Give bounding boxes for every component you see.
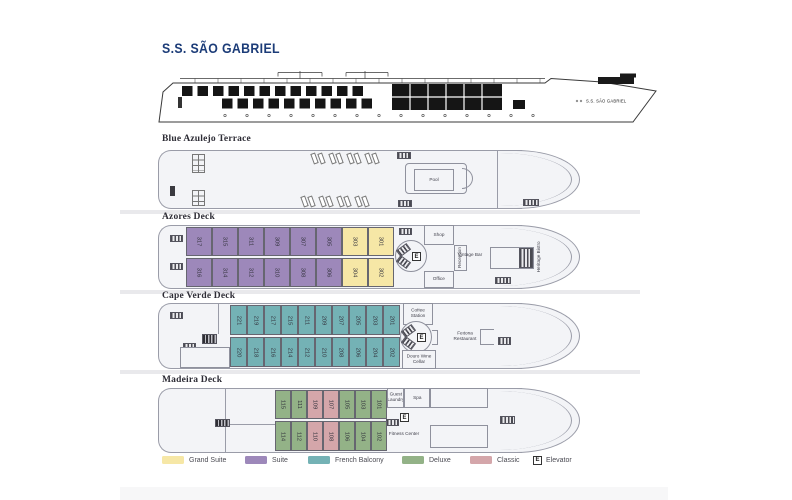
legend-item-grand: Grand Suite — [162, 455, 226, 465]
room-unlabeled — [430, 388, 488, 408]
deck-bow — [516, 388, 580, 453]
cabin-218: 218 — [247, 337, 264, 367]
cabin-209: 209 — [315, 305, 332, 335]
stairs-icon — [396, 243, 411, 257]
cabin-203: 203 — [366, 305, 383, 335]
legend-item-elevator: EElevator — [533, 455, 572, 465]
legend-swatch — [470, 456, 492, 464]
pool-area: Pool — [405, 163, 467, 194]
cabin-107: 107 — [323, 390, 339, 419]
cabin-111: 111 — [291, 390, 307, 419]
pool-label: Pool — [429, 178, 438, 183]
cabin-310: 310 — [264, 258, 290, 287]
room-shop: Shop — [424, 225, 454, 245]
cabin-314: 314 — [212, 258, 238, 287]
cabin-214: 214 — [281, 337, 298, 367]
cabin-210: 210 — [315, 337, 332, 367]
cabin-305: 305 — [316, 227, 342, 256]
legend-swatch — [162, 456, 184, 464]
deck-label-azores: Azores Deck — [162, 212, 215, 222]
cabin-207: 207 — [332, 305, 349, 335]
stairs-icon — [397, 152, 411, 159]
room-office: Office — [424, 271, 454, 288]
cabin-220: 220 — [230, 337, 247, 367]
elevator-icon: E — [417, 333, 426, 342]
legend-swatch — [308, 456, 330, 464]
elevator-icon: E — [533, 456, 542, 465]
next-section-edge — [120, 487, 668, 500]
cabin-308: 308 — [290, 258, 316, 287]
cabin-315: 315 — [212, 227, 238, 256]
cabin-110: 110 — [307, 421, 323, 451]
bar-shelf — [519, 248, 533, 268]
ship-funnel — [598, 77, 634, 84]
deck-plan-page: S.S. SÃO GABRIEL S.S. SÃO GABRIEL Blue A… — [0, 0, 792, 500]
cabin-102: 102 — [371, 421, 387, 451]
elevator-stairs: E — [395, 240, 427, 272]
room-guest-laundry: Guest Laundry — [387, 388, 404, 408]
room-fitness-center: Fitness Center — [383, 431, 425, 438]
cabin-115: 115 — [275, 390, 291, 419]
legend-label: Classic — [497, 457, 520, 464]
stairs-icon — [386, 419, 399, 426]
stairs-icon — [399, 228, 412, 235]
deck-label-madeira: Madeira Deck — [162, 375, 222, 385]
cabin-221: 221 — [230, 305, 247, 335]
ship-mast — [278, 71, 322, 79]
cabin-307: 307 — [290, 227, 316, 256]
restaurant-counter — [432, 330, 438, 345]
cabin-106: 106 — [339, 421, 355, 451]
room-vintage-bar: Vintage Bar — [452, 252, 488, 259]
cabin-202: 202 — [383, 337, 400, 367]
stairs-icon — [398, 200, 412, 207]
legend-item-suite: Suite — [245, 455, 288, 465]
deck-madeira: Guest Laundry Spa E Fitness Center 11511… — [158, 388, 580, 453]
cabin-217: 217 — [264, 305, 281, 335]
deck-label-cape-verde: Cape Verde Deck — [162, 291, 235, 301]
cabin-302: 302 — [368, 258, 394, 287]
pool: Pool — [414, 169, 454, 191]
deck-separator — [120, 370, 640, 374]
page-title: S.S. SÃO GABRIEL — [162, 40, 280, 56]
legend-label: Grand Suite — [189, 457, 226, 464]
cabin-108: 108 — [323, 421, 339, 451]
stairs-icon — [202, 334, 217, 344]
wall — [218, 304, 219, 334]
buffet-counter — [498, 337, 511, 345]
cabin-312: 312 — [238, 258, 264, 287]
legend-swatch — [402, 456, 424, 464]
cabin-212: 212 — [298, 337, 315, 367]
legend-label: French Balcony — [335, 457, 384, 464]
stairs-icon — [500, 416, 515, 424]
elevator-stairs: E — [400, 321, 432, 353]
cabin-316: 316 — [186, 258, 212, 287]
cabin-215: 215 — [281, 305, 298, 335]
cabin-114: 114 — [275, 421, 291, 451]
cabin-206: 206 — [349, 337, 366, 367]
cabin-304: 304 — [342, 258, 368, 287]
cabin-311: 311 — [238, 227, 264, 256]
legend-item-french: French Balcony — [308, 455, 384, 465]
cabin-103: 103 — [355, 390, 371, 419]
cabin-201: 201 — [383, 305, 400, 335]
legend-swatch — [245, 456, 267, 464]
stairs-icon — [170, 235, 183, 242]
ship-railing — [195, 79, 540, 84]
legend-item-classic: Classic — [470, 455, 520, 465]
restaurant-counter — [480, 329, 494, 345]
room-unlabeled — [180, 347, 230, 368]
ship-mast — [346, 71, 388, 79]
cabin-303: 303 — [342, 227, 368, 256]
cabin-306: 306 — [316, 258, 342, 287]
cabin-309: 309 — [264, 227, 290, 256]
cabin-317: 317 — [186, 227, 212, 256]
cabin-219: 219 — [247, 305, 264, 335]
room-wine-cellar: Douro Wine Cellar — [402, 350, 436, 369]
room-unlabeled — [430, 425, 488, 448]
cabin-105: 105 — [339, 390, 355, 419]
room-heritage-bistro: Heritage Bistro — [536, 237, 547, 277]
wall — [497, 151, 498, 208]
cabin-101: 101 — [371, 390, 387, 419]
deck-cape-verde: Coffee Station E Douro Wine Cellar Feito… — [158, 303, 580, 369]
stairs-icon — [215, 419, 230, 427]
cabin-211: 211 — [298, 305, 315, 335]
cabin-109: 109 — [307, 390, 323, 419]
deck-terrace: Pool — [158, 150, 580, 209]
cabin-301: 301 — [368, 227, 394, 256]
stairs-icon — [170, 312, 183, 319]
cabin-204: 204 — [366, 337, 383, 367]
deck-bow — [516, 303, 580, 369]
legend-item-deluxe: Deluxe — [402, 455, 451, 465]
cabin-205: 205 — [349, 305, 366, 335]
planter-icon — [192, 154, 205, 173]
cabin-112: 112 — [291, 421, 307, 451]
deck-label-terrace: Blue Azulejo Terrace — [162, 134, 251, 144]
planter-icon — [192, 190, 205, 206]
elevator-icon: E — [412, 252, 421, 261]
deck-azores: E Shop Reception Office Vintage Bar Heri… — [158, 225, 580, 289]
stairs-icon — [523, 199, 539, 206]
legend-label: Deluxe — [429, 457, 451, 464]
stairs-icon — [401, 324, 416, 338]
ship-profile-illustration: S.S. SÃO GABRIEL — [150, 70, 670, 132]
legend-label: Suite — [272, 457, 288, 464]
ship-bow-name: S.S. SÃO GABRIEL — [586, 99, 627, 104]
cabin-104: 104 — [355, 421, 371, 451]
cabin-208: 208 — [332, 337, 349, 367]
room-spa: Spa — [404, 388, 430, 408]
wall — [230, 424, 275, 425]
deck-structure — [170, 186, 175, 196]
stairs-icon — [495, 277, 511, 284]
elevator-icon: E — [400, 413, 409, 422]
stairs-icon — [170, 263, 183, 270]
legend-label: Elevator — [546, 457, 572, 464]
cabin-216: 216 — [264, 337, 281, 367]
